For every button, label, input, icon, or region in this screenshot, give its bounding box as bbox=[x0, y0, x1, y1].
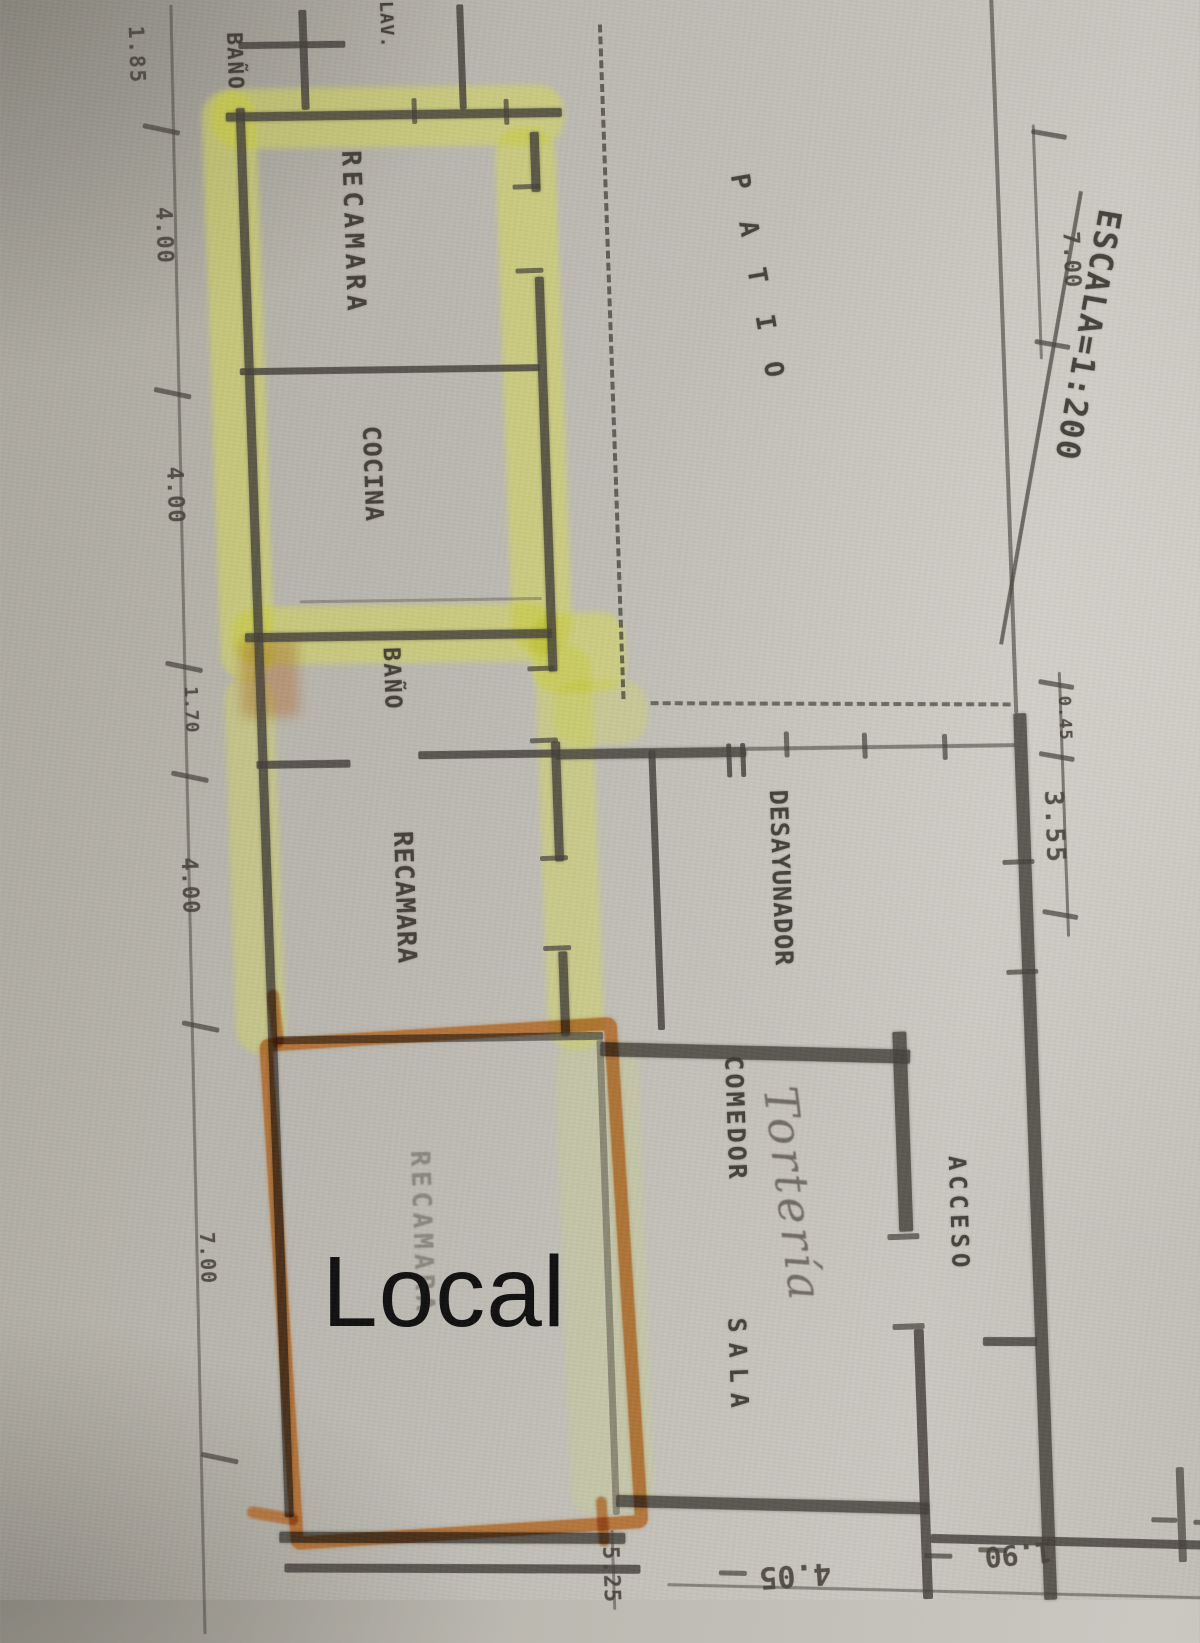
dim-left-1: 4.00 bbox=[151, 207, 175, 265]
dimension-line bbox=[1032, 124, 1043, 359]
door-tick bbox=[887, 1233, 919, 1240]
wall-segment bbox=[616, 1495, 929, 1515]
window-tick bbox=[530, 737, 558, 743]
dim-right-1: 0.45 bbox=[1055, 695, 1074, 741]
window-tick bbox=[942, 734, 948, 760]
window-tick bbox=[411, 98, 417, 124]
patio-boundary-line bbox=[989, 0, 1018, 713]
room-label-comedor: COMEDOR bbox=[721, 1055, 750, 1182]
window-tick bbox=[503, 99, 509, 125]
counter-line bbox=[300, 597, 542, 603]
door-mark bbox=[983, 1337, 1037, 1346]
dim-right-2: 3.55 bbox=[1040, 790, 1069, 865]
room-label-sala: SALA bbox=[724, 1317, 752, 1418]
dimension-tick bbox=[201, 1452, 239, 1465]
dim-left-0: 1.85 bbox=[125, 25, 148, 84]
dim-bottom-2: 1.90 bbox=[983, 1537, 1053, 1571]
dimension-tick bbox=[1042, 909, 1078, 920]
highlighter-stroke bbox=[552, 678, 649, 746]
handwritten-note: Tortería bbox=[753, 1083, 833, 1307]
room-label-recamara-2: RECAMARA bbox=[389, 830, 420, 964]
window-tick bbox=[515, 268, 543, 274]
room-label-lav: LAV. bbox=[376, 1, 396, 49]
room-label-bano-top: BAÑO bbox=[223, 32, 246, 91]
window-tick bbox=[543, 945, 571, 951]
dimension-tick bbox=[1193, 1520, 1200, 1526]
dim-bottom-0: 5.25 bbox=[598, 1546, 622, 1604]
door-tick bbox=[892, 1323, 924, 1330]
dimension-tick bbox=[1038, 679, 1074, 690]
room-label-recamara-1: RECAMARA bbox=[337, 150, 369, 316]
patio-boundary-dashed bbox=[598, 24, 626, 699]
wall-segment bbox=[418, 749, 555, 759]
dim-bottom-1: 4.05 bbox=[758, 1557, 832, 1592]
window-tick bbox=[512, 184, 540, 190]
dimension-tick bbox=[719, 1570, 747, 1576]
paper-photo: { "scale_title": "ESCALA=1:200", "rooms"… bbox=[0, 0, 1200, 1600]
dimension-tick bbox=[924, 1553, 952, 1559]
dimension-tick bbox=[153, 387, 191, 400]
highlighter-stroke bbox=[495, 127, 573, 654]
room-label-patio: PATIO bbox=[726, 172, 793, 411]
window-tick bbox=[540, 855, 568, 861]
wall-segment bbox=[256, 760, 350, 769]
local-overlay-label: Local bbox=[322, 1242, 566, 1342]
room-label-cocina: COCINA bbox=[359, 425, 387, 522]
dim-left-4: 4.00 bbox=[177, 857, 201, 915]
room-label-acceso: ACCESO bbox=[945, 1155, 973, 1272]
patio-boundary-dashed bbox=[651, 701, 1011, 706]
window-tick bbox=[527, 665, 555, 671]
dim-left-5: 7.00 bbox=[197, 1232, 219, 1285]
wall-segment bbox=[648, 750, 665, 1030]
wall-segment bbox=[555, 747, 746, 760]
dimension-line bbox=[667, 1583, 1200, 1600]
window-tick bbox=[784, 731, 790, 757]
dimension-tick bbox=[1039, 751, 1075, 762]
wall-segment bbox=[240, 364, 540, 375]
floor-plan: BAÑO LAV. RECAMARA COCINA BAÑO RECAMARA … bbox=[0, 0, 1200, 1620]
wall-segment bbox=[284, 1563, 640, 1573]
marker-smudge bbox=[239, 638, 300, 718]
room-label-desayunador: DESAYUNADOR bbox=[766, 789, 797, 966]
dimension-tick bbox=[1151, 1517, 1177, 1523]
wall-segment bbox=[238, 41, 345, 49]
dimension-tick bbox=[1031, 129, 1067, 140]
wall-segment bbox=[600, 1042, 910, 1064]
window-tick bbox=[862, 733, 868, 759]
dim-left-2: 4.00 bbox=[162, 466, 186, 524]
dimension-tick bbox=[171, 770, 209, 783]
dim-left-3: 1.70 bbox=[181, 686, 201, 734]
wall-segment bbox=[931, 1534, 1200, 1550]
dimension-tick bbox=[182, 1020, 220, 1033]
room-label-bano-2: BAÑO bbox=[379, 647, 404, 711]
wall-segment bbox=[914, 1329, 933, 1599]
